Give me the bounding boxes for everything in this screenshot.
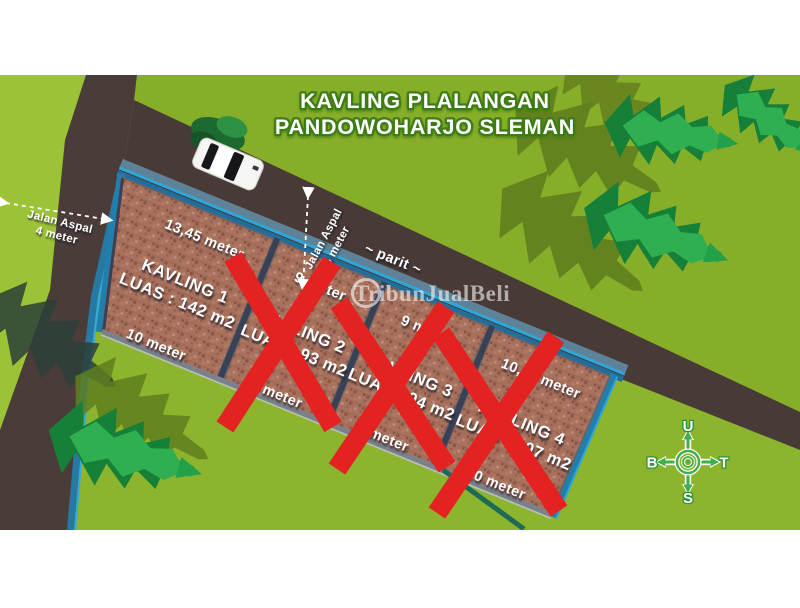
title-line2: PANDOWOHARJO SLEMAN	[275, 115, 575, 139]
title-line1: KAVLING PLALANGAN	[300, 89, 550, 113]
watermark-text: TribunJualBeli	[354, 281, 510, 306]
site-plan-svg: ~ parit ~ 13,45 meter 9 meter 9 meter 10…	[0, 0, 800, 608]
compass-north-label: U	[683, 418, 694, 435]
site-plan-image: ~ parit ~ 13,45 meter 9 meter 9 meter 10…	[0, 0, 800, 608]
compass-east-label: T	[719, 455, 728, 472]
watermark: TribunJualBeli	[353, 280, 511, 307]
compass-south-label: S	[683, 490, 693, 507]
compass-west-label: B	[647, 455, 658, 472]
